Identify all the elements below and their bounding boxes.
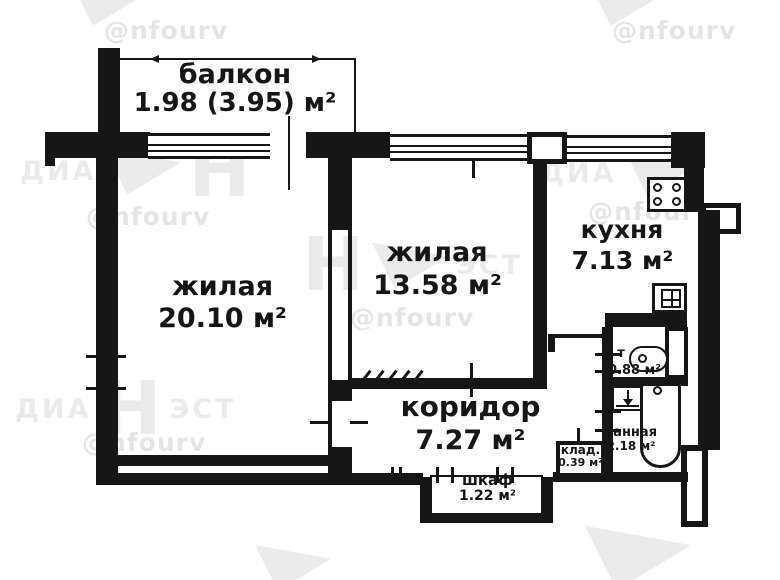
watermark-handle: @nfourv (612, 16, 736, 45)
brand-triangle-icon (585, 526, 691, 580)
watermark-logo (255, 545, 331, 580)
wall-column (527, 132, 567, 164)
living2-area: 13.58 м² (355, 271, 520, 300)
door-jamb-tick (310, 421, 332, 424)
pantry-label: клад. (558, 444, 603, 457)
toilet-flush-icon (638, 354, 647, 363)
living1-area: 20.10 м² (140, 304, 305, 333)
corridor-label: коридор (393, 392, 548, 422)
brand-text: ЭСТ (169, 394, 236, 425)
watermark-handle: @nfourv (350, 303, 474, 332)
bathroom-area: 2.18 м² (605, 440, 657, 453)
stove-icon (647, 177, 687, 212)
wall (605, 313, 687, 327)
door-leaf (548, 334, 555, 352)
door-jamb-tick (391, 467, 394, 483)
door-jamb-tick (451, 467, 454, 483)
kitchen-label: кухня (572, 216, 672, 243)
wall (671, 132, 705, 168)
door-jamb-tick (350, 421, 368, 424)
wall (328, 447, 352, 485)
wall (698, 210, 720, 450)
wall (328, 158, 352, 230)
wall (306, 132, 390, 158)
pantry-area: 0.39 м² (556, 457, 605, 469)
wall (96, 473, 423, 485)
bathtub-drain-icon (653, 386, 662, 395)
watermark-logo (70, 0, 146, 26)
corridor-area: 7.27 м² (398, 426, 543, 455)
wall (96, 132, 118, 483)
door-jamb-tick (436, 467, 439, 483)
toilet-label: т (614, 347, 628, 361)
bathroom-label: ванная (603, 426, 659, 440)
watermark-logo (585, 526, 691, 580)
window-symbol (567, 135, 671, 162)
balcony-area: 1.98 (3.95) м² (125, 89, 345, 117)
washbasin-icon (612, 386, 643, 411)
dimension-tick (86, 387, 126, 390)
window-symbol (148, 133, 270, 159)
brand-triangle-icon (255, 545, 331, 580)
brand-text: ДИА (20, 156, 97, 187)
brand-triangle-icon (588, 0, 664, 26)
dimension-tick (472, 160, 475, 178)
balcony-label: балкон (150, 60, 320, 89)
door-leaf (548, 334, 604, 338)
living1-label: жилая (150, 272, 295, 301)
dimension-tick (577, 428, 580, 442)
wall (98, 48, 120, 134)
window-symbol (390, 134, 527, 161)
watermark-handle: @nfourv (104, 16, 228, 45)
floor-plan: @nfourv @nfourv ДИА Н @nfourv Н ЭСТ @nfo… (0, 0, 780, 580)
wall (533, 162, 547, 385)
living2-label: жилая (362, 238, 512, 267)
closet-label: шкаф (455, 472, 520, 488)
kitchen-sink-icon (652, 283, 687, 313)
wall-line (348, 230, 352, 380)
wall-pillar (665, 327, 688, 379)
watermark-logo (588, 0, 664, 26)
door-jamb-tick (399, 467, 402, 483)
toilet-area: 0.88 м² (608, 364, 658, 378)
closet-area: 1.22 м² (450, 489, 525, 504)
brand-triangle-icon (70, 0, 146, 26)
kitchen-area: 7.13 м² (570, 247, 675, 274)
wall (45, 132, 55, 166)
wall (543, 477, 553, 523)
dimension-line (288, 116, 290, 190)
wall (116, 455, 352, 466)
brand-text: ДИА (15, 394, 92, 425)
wall (681, 445, 708, 527)
dimension-tick (86, 355, 126, 358)
